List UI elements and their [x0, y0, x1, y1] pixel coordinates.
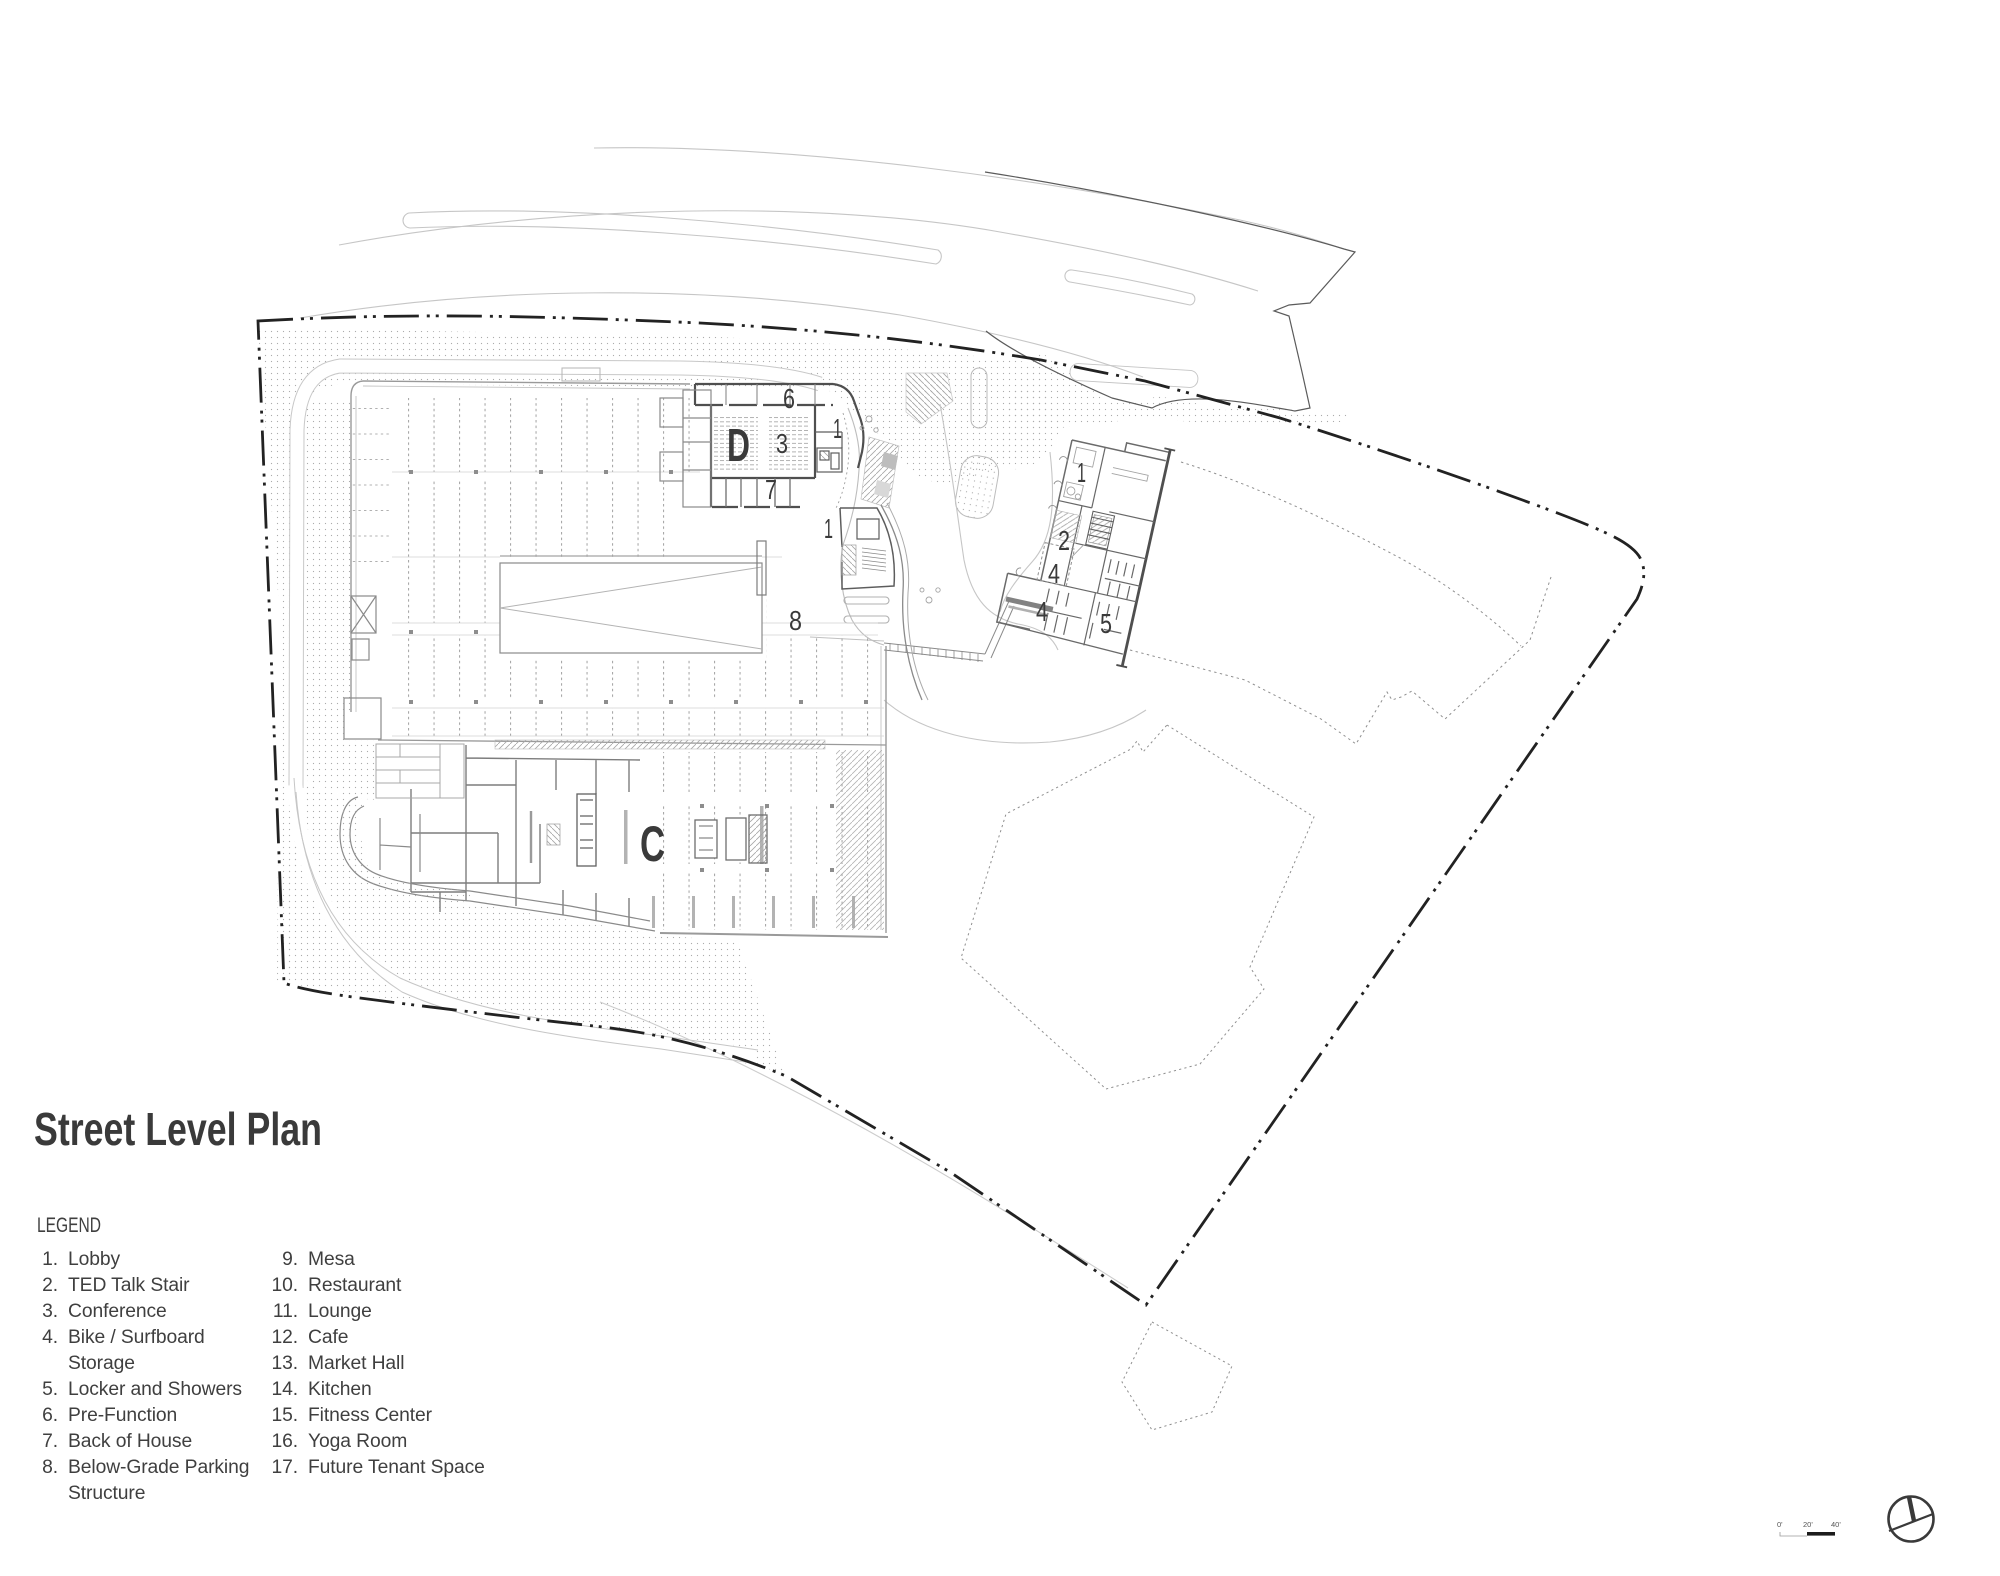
svg-text:Cafe: Cafe: [308, 1327, 348, 1348]
svg-text:7.: 7.: [42, 1431, 58, 1452]
svg-text:2: 2: [1058, 525, 1070, 556]
svg-text:1.: 1.: [42, 1249, 58, 1270]
svg-text:Kitchen: Kitchen: [308, 1379, 372, 1400]
svg-text:6: 6: [783, 383, 795, 414]
svg-text:20': 20': [1803, 1520, 1813, 1529]
svg-text:D: D: [727, 419, 750, 471]
svg-text:Lobby: Lobby: [68, 1249, 120, 1270]
svg-text:40': 40': [1831, 1520, 1841, 1529]
svg-text:8.: 8.: [42, 1457, 58, 1478]
svg-text:Street Level Plan: Street Level Plan: [34, 1103, 322, 1155]
svg-text:4: 4: [1036, 596, 1048, 627]
svg-text:10.: 10.: [271, 1275, 298, 1296]
svg-text:Bike / Surfboard: Bike / Surfboard: [68, 1327, 205, 1348]
svg-text:4.: 4.: [42, 1327, 58, 1348]
svg-text:7: 7: [765, 474, 777, 505]
svg-text:16.: 16.: [271, 1431, 298, 1452]
svg-text:15.: 15.: [271, 1405, 298, 1426]
svg-text:Pre-Function: Pre-Function: [68, 1405, 177, 1426]
svg-text:Locker and Showers: Locker and Showers: [68, 1379, 242, 1400]
svg-text:Future Tenant Space: Future Tenant Space: [308, 1457, 485, 1478]
svg-text:17.: 17.: [271, 1457, 298, 1478]
svg-text:Back of House: Back of House: [68, 1431, 192, 1452]
svg-text:13.: 13.: [271, 1353, 298, 1374]
svg-text:5.: 5.: [42, 1379, 58, 1400]
svg-text:5: 5: [1100, 608, 1112, 639]
svg-text:12.: 12.: [271, 1327, 298, 1348]
svg-text:TED Talk Stair: TED Talk Stair: [68, 1275, 190, 1296]
svg-text:4: 4: [1048, 558, 1060, 589]
svg-text:Conference: Conference: [68, 1301, 167, 1322]
svg-text:1: 1: [833, 413, 842, 444]
svg-text:1: 1: [1077, 457, 1086, 488]
svg-text:3.: 3.: [42, 1301, 58, 1322]
svg-text:LEGEND: LEGEND: [37, 1214, 101, 1237]
svg-text:C: C: [640, 816, 665, 872]
svg-text:0': 0': [1777, 1520, 1783, 1529]
svg-text:Below-Grade Parking: Below-Grade Parking: [68, 1457, 249, 1478]
svg-text:Structure: Structure: [68, 1483, 145, 1504]
svg-text:Mesa: Mesa: [308, 1249, 355, 1270]
svg-text:Restaurant: Restaurant: [308, 1275, 402, 1296]
svg-text:11.: 11.: [273, 1301, 298, 1322]
svg-text:Storage: Storage: [68, 1353, 135, 1374]
svg-text:Yoga Room: Yoga Room: [308, 1431, 407, 1452]
svg-text:6.: 6.: [42, 1405, 58, 1426]
svg-text:3: 3: [776, 428, 788, 459]
svg-text:1: 1: [824, 513, 833, 544]
svg-text:9.: 9.: [282, 1249, 298, 1270]
svg-text:Lounge: Lounge: [308, 1301, 372, 1322]
svg-text:Fitness Center: Fitness Center: [308, 1405, 433, 1426]
svg-text:2.: 2.: [42, 1275, 58, 1296]
svg-text:8: 8: [789, 605, 802, 636]
svg-text:14.: 14.: [271, 1379, 298, 1400]
svg-text:Market Hall: Market Hall: [308, 1353, 404, 1374]
